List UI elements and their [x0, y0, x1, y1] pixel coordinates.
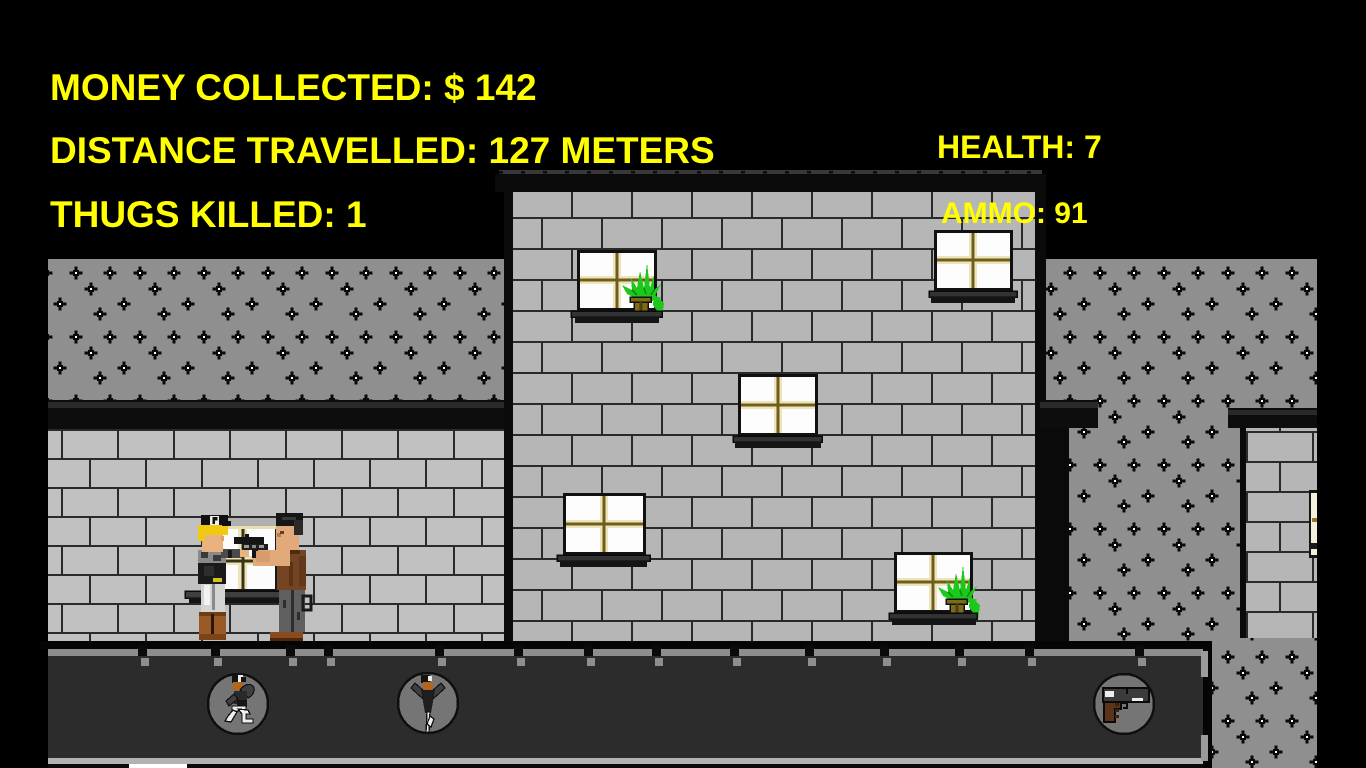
- svg-text:DISTANCE TRAVELLED: 127 METERS: DISTANCE TRAVELLED: 127 METERS: [50, 130, 715, 171]
- svg-text:THUGS KILLED: 1: THUGS KILLED: 1: [50, 194, 367, 235]
- svg-text:AMMO: 91: AMMO: 91: [941, 197, 1088, 230]
- svg-text:HEALTH: 7: HEALTH: 7: [937, 129, 1102, 165]
- svg-text:MONEY COLLECTED: $ 142: MONEY COLLECTED: $ 142: [50, 67, 537, 108]
